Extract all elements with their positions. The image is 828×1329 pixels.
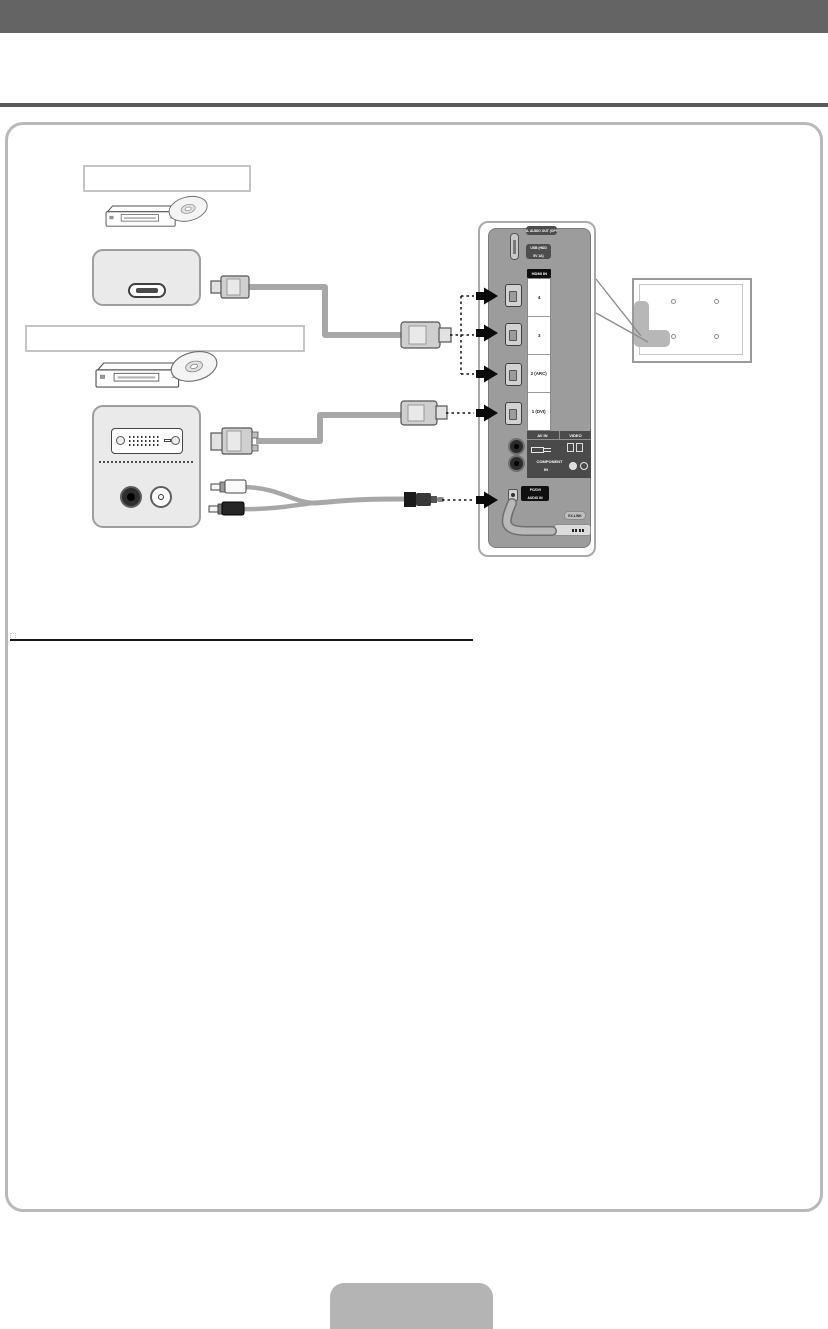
hdmi-port-4-label: 4	[528, 279, 550, 317]
dvi-screw-right-icon	[171, 436, 180, 445]
dvi-pin-row	[129, 436, 161, 438]
pc-dvi-audio-in-label: PC/DVI AUDIO IN	[521, 486, 549, 501]
av-side-jack-icon	[508, 438, 525, 455]
audio-out-jack-right-icon	[150, 486, 172, 508]
dvi-source-device-box	[92, 405, 201, 528]
jack-hole	[158, 494, 164, 500]
av-in-section: AV IN VIDEO COMPONENT IN	[527, 431, 591, 478]
hdmi-port-strip: 4 3 2 (ARC) 1 (DVI)	[527, 278, 551, 431]
dvi-flat-pin	[164, 439, 171, 442]
dvi-box-divider	[99, 461, 193, 463]
component-in-label: COMPONENT IN	[527, 458, 565, 474]
dvi-screw-left-icon	[116, 436, 125, 445]
hdmi-port-4-icon	[505, 284, 522, 307]
screw-hole-icon	[714, 334, 719, 339]
device-caption-box-2	[25, 325, 305, 352]
hdmi-port-2-icon	[505, 363, 522, 386]
hdmi-port-1-icon	[505, 402, 522, 425]
hdmi-port-2-arc-label: 2 (ARC)	[528, 355, 550, 393]
footer-tab	[330, 1283, 493, 1329]
screw-hole-icon	[714, 299, 719, 304]
device-caption-box-1	[83, 165, 251, 192]
section-underline	[10, 639, 473, 641]
dvi-pin-row	[129, 444, 161, 446]
hdmi-out-port-slot	[136, 288, 158, 293]
optical-port-icon	[510, 233, 519, 260]
av-in-label: AV IN	[527, 431, 559, 439]
jack-hole	[127, 493, 135, 501]
screw-hole-icon	[671, 299, 676, 304]
digital-audio-out-label: DIGITAL AUDIO OUT (OPTICAL)	[526, 226, 557, 235]
usb-label: USB (HDD 5V 1A)	[526, 244, 551, 259]
dvi-out-port-icon	[111, 428, 183, 454]
panel-location-highlight	[634, 330, 670, 347]
header-rule	[0, 103, 828, 107]
audio-out-jack-left-icon	[120, 486, 142, 508]
ex-link-label: EX-LINK	[564, 511, 586, 520]
hdmi-port-1-dvi-label: 1 (DVI)	[528, 393, 550, 430]
hdmi-port-3-label: 3	[528, 317, 550, 355]
av-plug-icon	[531, 445, 553, 455]
dvi-pin-row	[129, 440, 161, 442]
component-side-jack-icon	[508, 455, 525, 472]
video-jack-icons	[567, 443, 583, 452]
component-jack-icons	[569, 462, 588, 470]
manual-page: DIGITAL AUDIO OUT (OPTICAL) USB (HDD 5V …	[0, 0, 828, 1329]
ex-link-port-icon	[554, 524, 591, 536]
hdmi-port-3-icon	[505, 323, 522, 346]
screw-hole-icon	[671, 334, 676, 339]
video-label: VIDEO	[560, 431, 592, 439]
pc-dvi-audio-port-icon	[508, 489, 518, 501]
page-header-bar	[0, 0, 828, 33]
hdmi-in-label: HDMI IN	[527, 269, 551, 278]
